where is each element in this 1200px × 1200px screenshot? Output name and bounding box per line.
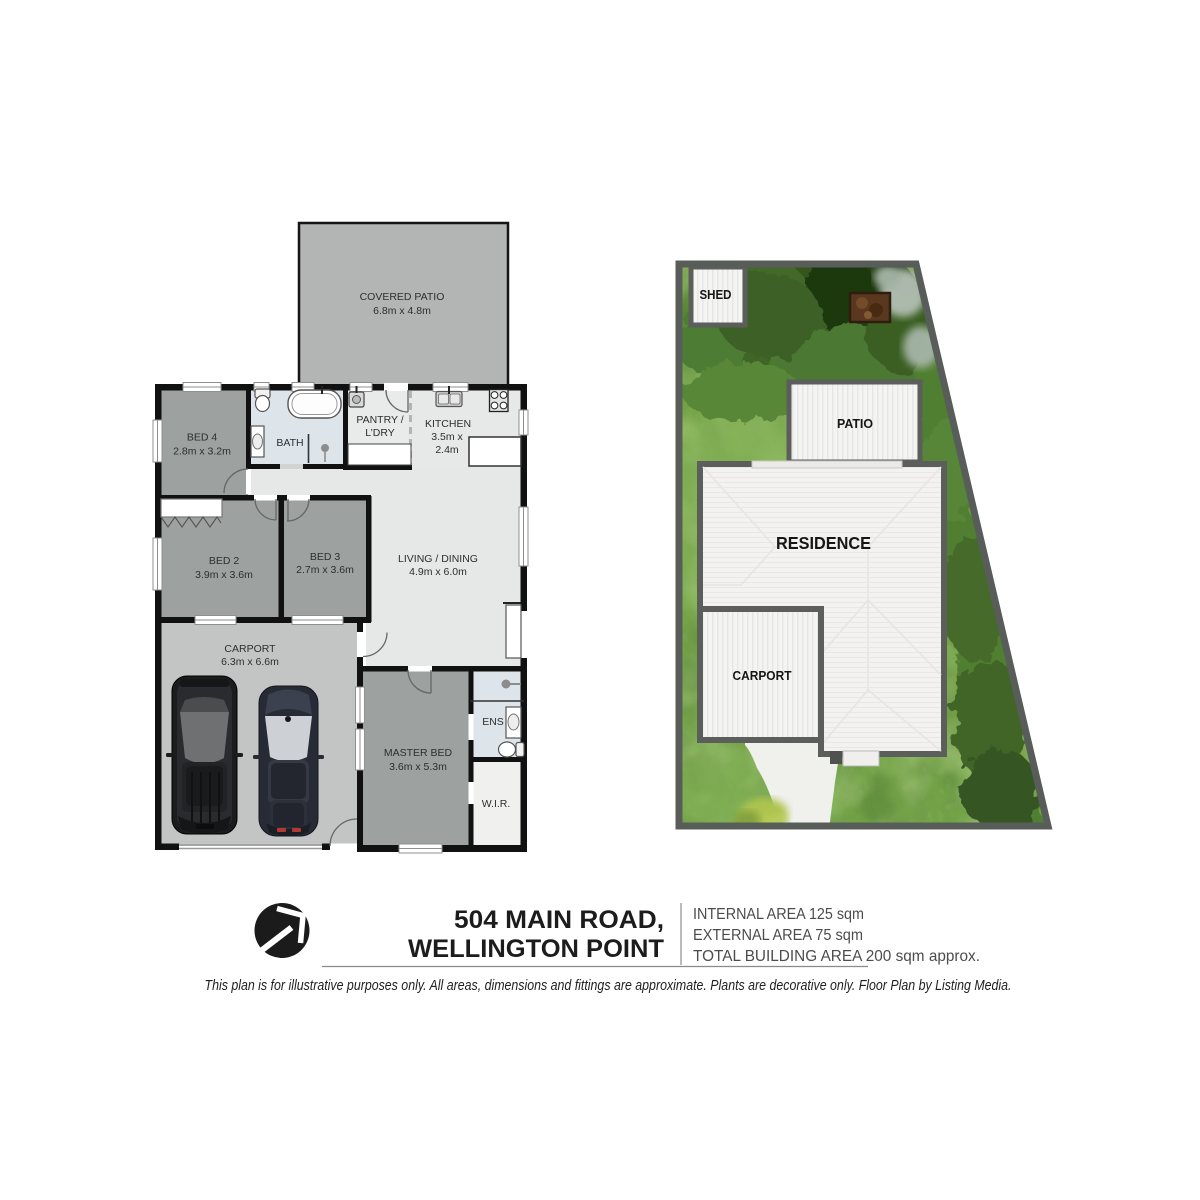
svg-text:EXTERNAL AREA 75 sqm: EXTERNAL AREA 75 sqm (693, 927, 863, 944)
svg-text:BATH: BATH (276, 437, 303, 449)
svg-text:PATIO: PATIO (837, 417, 873, 431)
svg-text:COVERED PATIO: COVERED PATIO (360, 291, 445, 303)
svg-text:6.8m x 4.8m: 6.8m x 4.8m (373, 305, 431, 317)
svg-text:2.7m x 3.6m: 2.7m x 3.6m (296, 564, 354, 576)
svg-text:BED 4: BED 4 (187, 432, 218, 444)
svg-text:KITCHEN: KITCHEN (425, 418, 471, 430)
svg-text:2.8m x 3.2m: 2.8m x 3.2m (173, 446, 231, 458)
svg-text:WELLINGTON POINT: WELLINGTON POINT (408, 935, 664, 963)
svg-text:L’DRY: L’DRY (365, 427, 395, 439)
svg-text:3.6m x 5.3m: 3.6m x 5.3m (389, 761, 447, 773)
svg-text:BED 2: BED 2 (209, 555, 240, 567)
svg-text:2.4m: 2.4m (435, 444, 459, 456)
svg-text:INTERNAL AREA 125 sqm: INTERNAL AREA 125 sqm (693, 906, 864, 923)
svg-text:SHED: SHED (700, 287, 732, 302)
svg-text:LIVING / DINING: LIVING / DINING (398, 553, 478, 565)
svg-text:W.I.R.: W.I.R. (482, 798, 511, 810)
svg-text:4.9m x 6.0m: 4.9m x 6.0m (409, 566, 467, 578)
svg-text:MASTER BED: MASTER BED (384, 747, 453, 759)
svg-text:CARPORT: CARPORT (224, 643, 276, 655)
svg-text:TOTAL BUILDING AREA 200 sqm ap: TOTAL BUILDING AREA 200 sqm approx. (693, 948, 980, 965)
svg-text:3.9m x 3.6m: 3.9m x 3.6m (195, 569, 253, 581)
svg-text:6.3m x 6.6m: 6.3m x 6.6m (221, 656, 279, 668)
svg-text:BED 3: BED 3 (310, 551, 341, 563)
svg-text:504 MAIN ROAD,: 504 MAIN ROAD, (454, 906, 664, 934)
svg-text:3.5m x: 3.5m x (431, 431, 463, 443)
svg-text:RESIDENCE: RESIDENCE (776, 533, 871, 553)
svg-text:CARPORT: CARPORT (733, 669, 792, 683)
svg-text:This plan is for illustrative: This plan is for illustrative purposes o… (205, 978, 1012, 994)
svg-text:PANTRY /: PANTRY / (356, 414, 403, 426)
svg-text:ENS: ENS (482, 716, 504, 728)
